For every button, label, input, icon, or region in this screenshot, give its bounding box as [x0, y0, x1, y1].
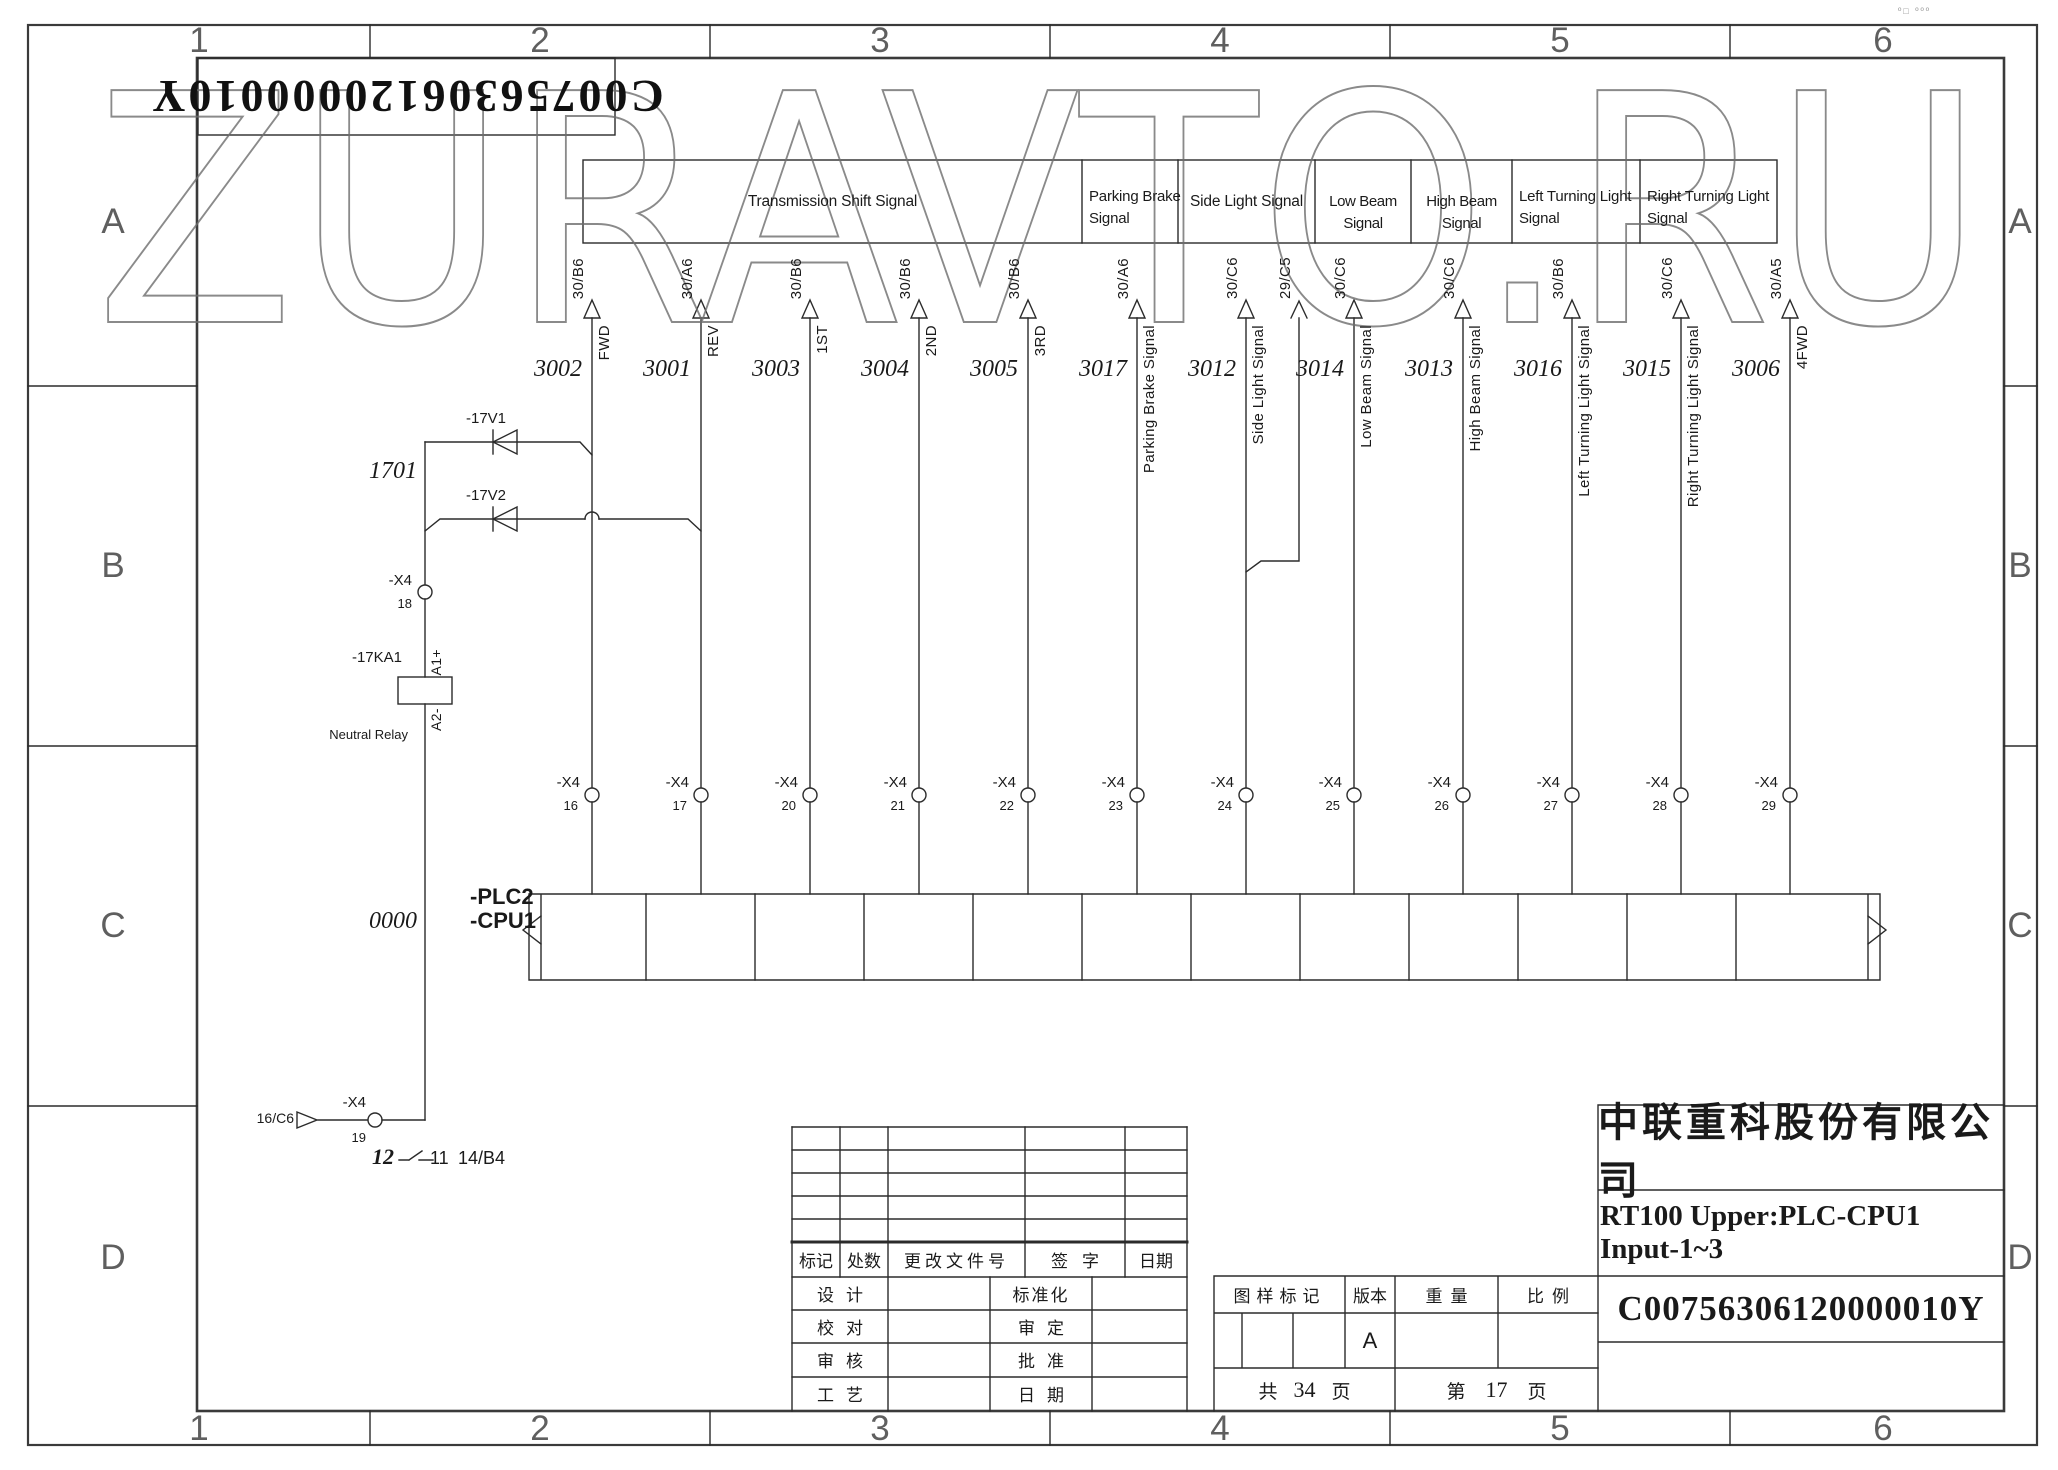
signal-group-label-left-turning: Left Turning Light Signal — [1519, 186, 1649, 230]
row-label: C — [1980, 909, 2058, 943]
pages-total-unit: 页 — [1332, 1377, 1351, 1404]
sign-cell: 审定 — [990, 1311, 1092, 1341]
sign-cell: 日期 — [990, 1378, 1092, 1409]
sign-cell: 标准化 — [990, 1278, 1092, 1308]
plc-label-line2: -CPU1 — [470, 908, 536, 934]
schematic-sheet: ZURAVTO.RU º□ ººº 1 2 3 4 5 6 1 2 3 4 5 … — [0, 0, 2058, 1470]
coil-terminal-label-a2: A2- — [428, 708, 444, 731]
row-label: A — [1980, 205, 2058, 239]
sign-cell: 工艺 — [792, 1378, 888, 1409]
column-label: 4 — [1180, 1412, 1260, 1446]
row-label: C — [73, 909, 153, 943]
contact-pin-label: 12 — [372, 1144, 394, 1170]
column-label: 5 — [1520, 24, 1600, 58]
sign-cell: 设计 — [792, 1278, 888, 1308]
company-name: 中联重科股份有限公司 — [1598, 1105, 2004, 1190]
sign-cell: 审核 — [792, 1344, 888, 1375]
pin-label: 19 — [300, 1130, 366, 1145]
column-label: 6 — [1843, 1412, 1923, 1446]
rev-header-cell: 标记 — [792, 1244, 840, 1275]
column-label: 1 — [159, 1412, 239, 1446]
plc-label-line1: -PLC2 — [470, 884, 534, 910]
sign-cell: 校对 — [792, 1311, 888, 1341]
drawing-number: C00756306120000010Y — [1598, 1276, 2004, 1342]
rev-header-cell: 签字 — [1025, 1244, 1125, 1275]
wires-lines — [584, 300, 1798, 894]
relay-circuit-lines — [297, 430, 701, 1160]
signal-group-label-right-turning: Right Turning Light Signal — [1647, 186, 1779, 230]
source-ref-label: 16/C6 — [214, 1110, 294, 1126]
rev-header-cell: 日期 — [1125, 1244, 1187, 1275]
pages-total-prefix: 共 — [1258, 1377, 1277, 1404]
stamp-header-cell: 比例 — [1498, 1278, 1598, 1311]
page-prefix: 第 — [1446, 1377, 1465, 1404]
column-label: 6 — [1843, 24, 1923, 58]
column-label: 1 — [159, 24, 239, 58]
rotated-doc-number: C00756306120000010Y — [198, 58, 615, 135]
signal-group-label-low-beam: Low Beam Signal — [1313, 191, 1413, 235]
stamp-header-cell: 重量 — [1395, 1278, 1498, 1311]
connector-label: -X4 — [300, 1094, 366, 1111]
column-label: 3 — [840, 1412, 920, 1446]
column-label: 3 — [840, 24, 920, 58]
row-label: B — [73, 549, 153, 583]
rev-header-cell: 更改文件号 — [888, 1244, 1025, 1275]
offpage-ref-label: 29/C5 — [1277, 257, 1294, 299]
net-label-1701: 1701 — [317, 458, 417, 485]
row-label: A — [73, 205, 153, 239]
stamp-header-cell: 版本 — [1345, 1278, 1395, 1311]
signal-group-label-side-light: Side Light Signal — [1178, 191, 1315, 213]
version-value: A — [1345, 1315, 1395, 1366]
diode-label-17v2: -17V2 — [466, 487, 506, 504]
column-label: 2 — [500, 1412, 580, 1446]
net-label-0000: 0000 — [317, 908, 417, 935]
coil-terminal-label-a1: A1+ — [428, 649, 444, 676]
row-label: B — [1980, 549, 2058, 583]
page-unit: 页 — [1528, 1377, 1547, 1404]
column-label: 4 — [1180, 24, 1260, 58]
contact-ref-label: 14/B4 — [458, 1148, 505, 1169]
contact-pin-label: 11 — [430, 1148, 449, 1169]
signal-group-label-parking-brake: Parking Brake Signal — [1089, 186, 1181, 230]
sign-cell: 批准 — [990, 1344, 1092, 1375]
rev-header-cell: 处数 — [840, 1244, 888, 1275]
signal-group-label-high-beam: High Beam Signal — [1411, 191, 1512, 235]
page-current: 第 17 页 — [1395, 1370, 1598, 1410]
column-label: 2 — [500, 24, 580, 58]
column-label: 5 — [1520, 1412, 1600, 1446]
connector-label: -X4 — [342, 572, 412, 589]
signal-group-label-transmission: Transmission Shift Signal — [583, 191, 1082, 213]
pages-total-value: 34 — [1294, 1377, 1316, 1403]
pin-label: 18 — [342, 596, 412, 611]
relay-caption: Neutral Relay — [288, 727, 408, 742]
corner-marks: º□ ººº — [1898, 6, 1931, 16]
pages-total: 共 34 页 — [1214, 1370, 1395, 1410]
relay-label: -17KA1 — [302, 649, 402, 666]
stamp-header-cell: 图样标记 — [1214, 1278, 1345, 1311]
row-label: D — [73, 1241, 153, 1275]
drawing-title: RT100 Upper:PLC-CPU1 Input-1~3 — [1600, 1190, 2004, 1276]
page-value: 17 — [1486, 1377, 1508, 1403]
diode-label-17v1: -17V1 — [466, 410, 506, 427]
plc-box-lines — [523, 894, 1886, 980]
